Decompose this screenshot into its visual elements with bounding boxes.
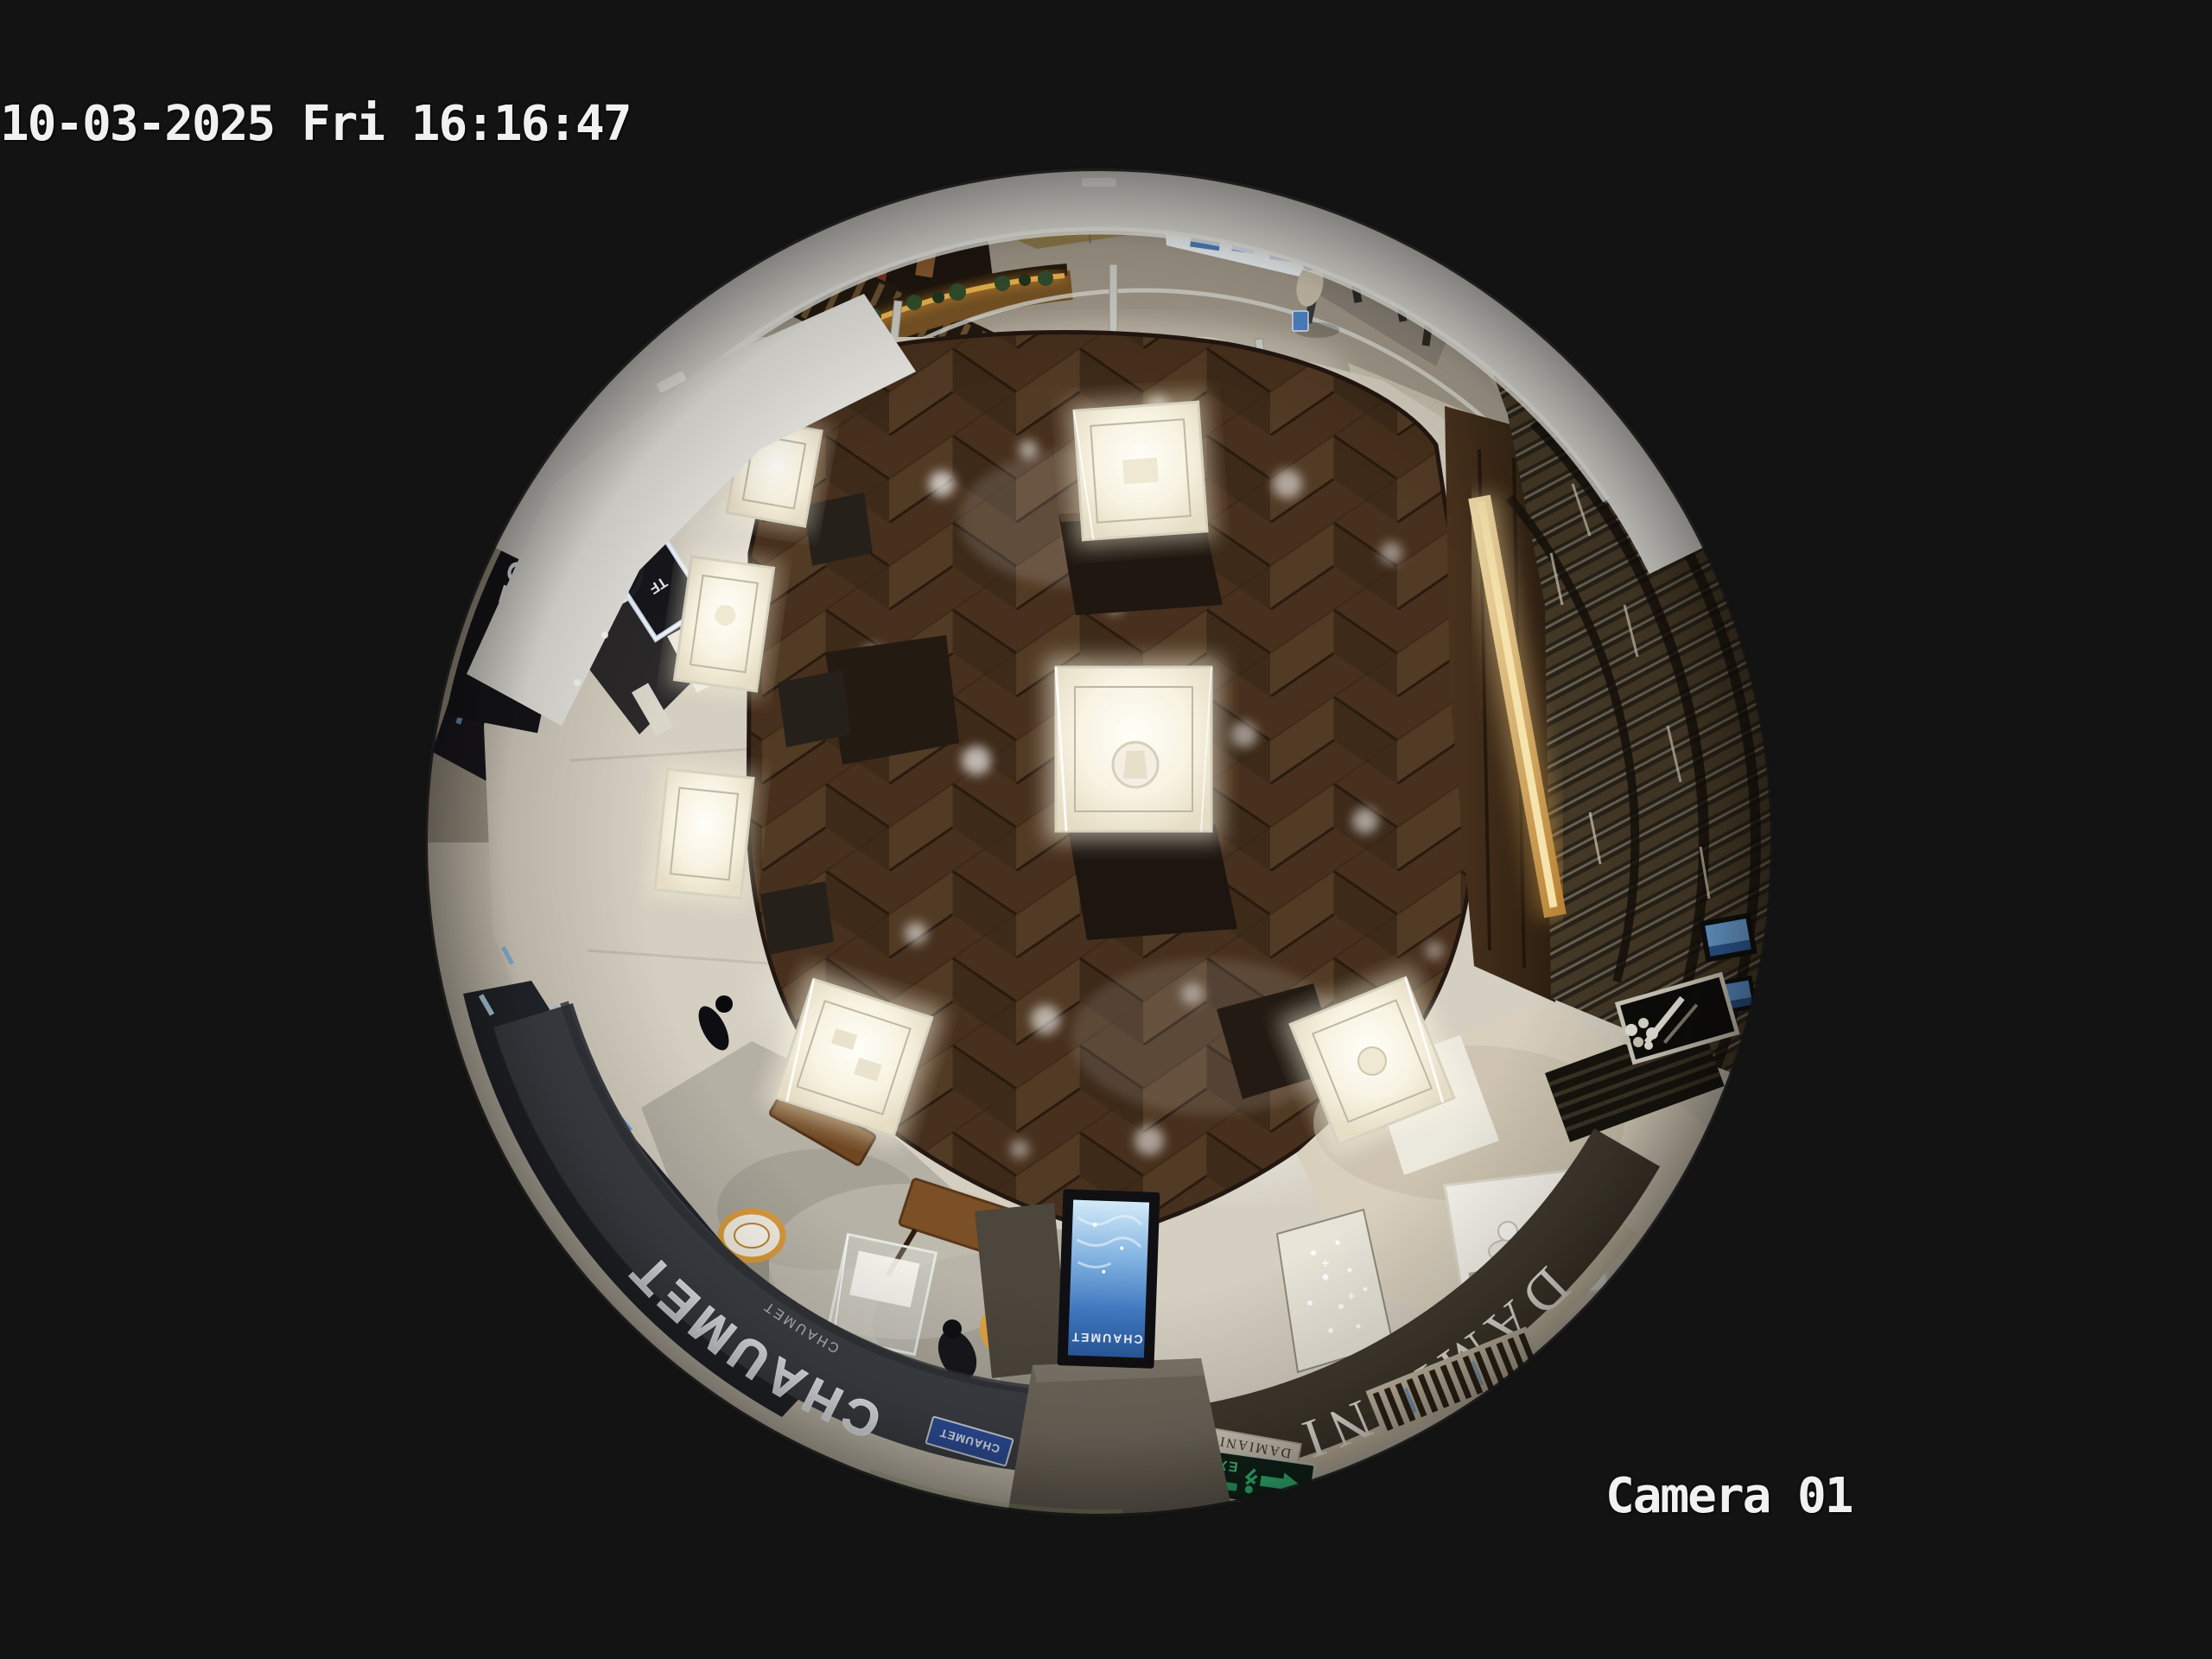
fisheye-camera-view: H.BORCH xyxy=(0,0,2212,1659)
osd-timestamp: 10-03-2025 Fri 16:16:47 xyxy=(0,100,630,149)
osd-camera-label: Camera 01 xyxy=(1605,1472,1852,1521)
cctv-frame: H.BORCH xyxy=(0,0,2212,1659)
fisheye-circle: H.BORCH xyxy=(425,149,1773,1519)
lens-vignette xyxy=(425,168,1773,1516)
